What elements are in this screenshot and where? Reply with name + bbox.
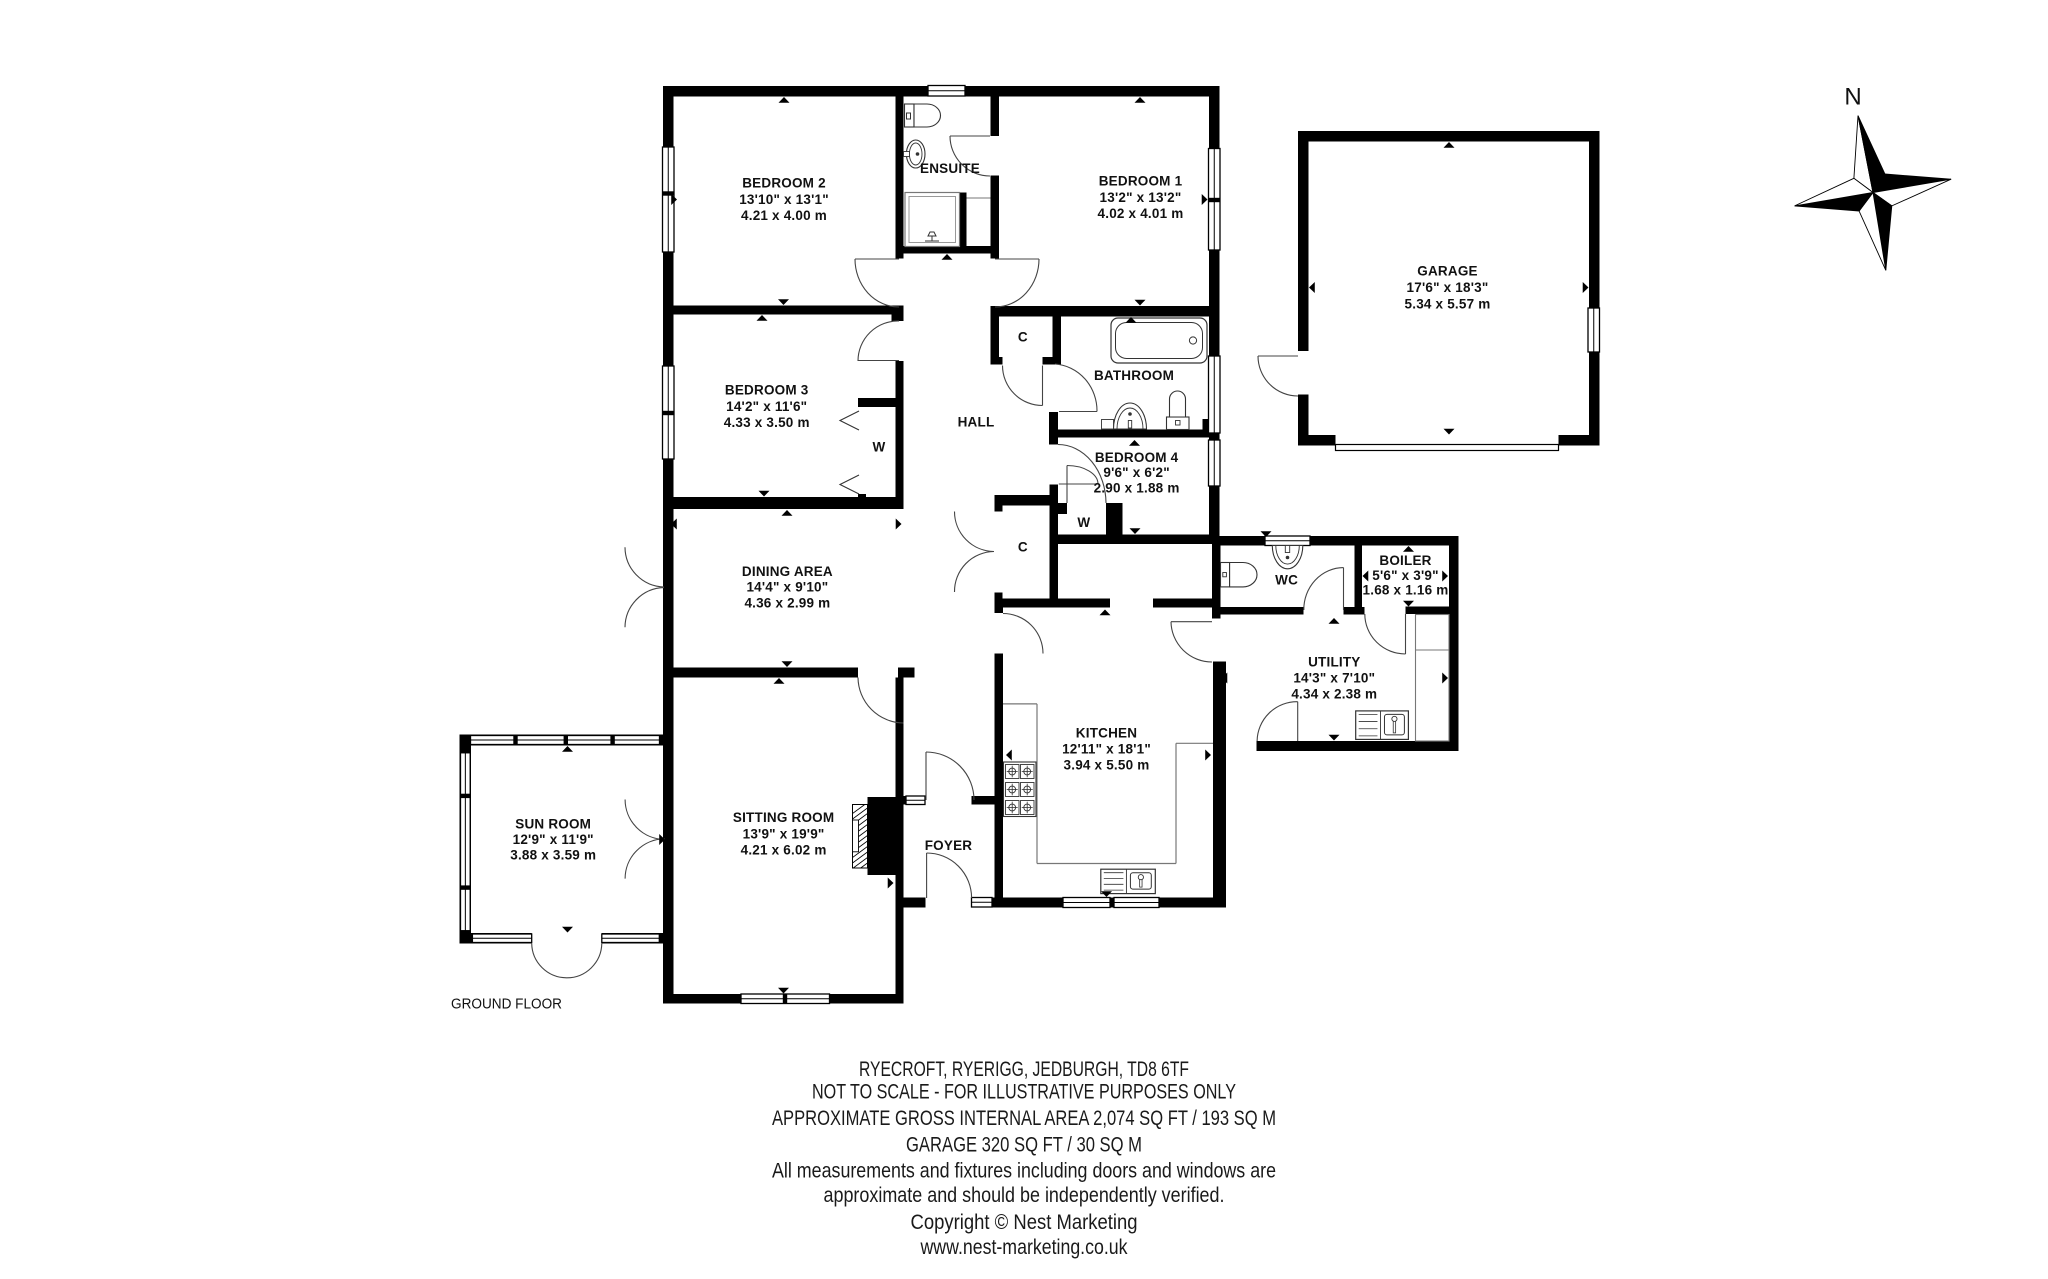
svg-text:WC: WC	[1275, 572, 1298, 587]
svg-text:FOYER: FOYER	[925, 838, 973, 853]
svg-text:13'2" x 13'2": 13'2" x 13'2"	[1100, 190, 1182, 205]
svg-text:2.90 x 1.88 m: 2.90 x 1.88 m	[1094, 480, 1180, 495]
svg-text:3.88 x 3.59 m: 3.88 x 3.59 m	[510, 847, 596, 862]
svg-text:14'2" x 11'6": 14'2" x 11'6"	[726, 399, 807, 414]
svg-text:C: C	[1018, 539, 1028, 554]
svg-text:13'9" x 19'9": 13'9" x 19'9"	[743, 826, 825, 841]
svg-text:4.36 x 2.99 m: 4.36 x 2.99 m	[744, 596, 830, 611]
svg-text:1.68 x 1.16 m: 1.68 x 1.16 m	[1363, 582, 1449, 597]
svg-text:12'11" x 18'1": 12'11" x 18'1"	[1062, 741, 1151, 756]
svg-text:13'10" x 13'1": 13'10" x 13'1"	[739, 192, 829, 207]
svg-text:4.33 x 3.50 m: 4.33 x 3.50 m	[724, 415, 810, 430]
svg-text:17'6" x 18'3": 17'6" x 18'3"	[1407, 280, 1489, 295]
svg-text:BEDROOM 1: BEDROOM 1	[1099, 174, 1183, 189]
svg-text:ENSUITE: ENSUITE	[920, 161, 980, 176]
svg-text:C: C	[1018, 330, 1028, 345]
svg-text:W: W	[873, 440, 886, 455]
svg-text:SITTING ROOM: SITTING ROOM	[733, 810, 834, 825]
svg-text:BEDROOM 2: BEDROOM 2	[742, 176, 826, 191]
svg-text:4.21 x 6.02 m: 4.21 x 6.02 m	[741, 842, 827, 857]
svg-text:3.94 x 5.50 m: 3.94 x 5.50 m	[1064, 757, 1150, 772]
svg-text:BEDROOM 4: BEDROOM 4	[1095, 450, 1179, 465]
svg-text:www.nest-marketing.co.uk: www.nest-marketing.co.uk	[920, 1236, 1128, 1259]
svg-text:GARAGE: GARAGE	[1417, 263, 1477, 278]
svg-text:All measurements and fixtures: All measurements and fixtures including …	[772, 1160, 1276, 1183]
svg-text:9'6" x 6'2": 9'6" x 6'2"	[1103, 465, 1169, 480]
svg-text:UTILITY: UTILITY	[1308, 655, 1360, 670]
svg-text:BEDROOM 3: BEDROOM 3	[725, 383, 809, 398]
svg-text:W: W	[1077, 515, 1090, 530]
svg-text:GARAGE 320 SQ FT / 30 SQ M: GARAGE 320 SQ FT / 30 SQ M	[906, 1134, 1142, 1157]
svg-text:12'9" x 11'9": 12'9" x 11'9"	[513, 832, 594, 847]
svg-text:N: N	[1844, 83, 1861, 110]
svg-text:14'4" x 9'10": 14'4" x 9'10"	[746, 580, 828, 595]
svg-text:DINING AREA: DINING AREA	[742, 564, 833, 579]
svg-text:14'3" x 7'10": 14'3" x 7'10"	[1293, 670, 1375, 685]
svg-text:APPROXIMATE GROSS INTERNAL ARE: APPROXIMATE GROSS INTERNAL AREA 2,074 SQ…	[772, 1107, 1276, 1130]
svg-text:NOT TO SCALE - FOR ILLUSTRATIV: NOT TO SCALE - FOR ILLUSTRATIVE PURPOSES…	[812, 1081, 1236, 1104]
svg-text:4.21 x 4.00 m: 4.21 x 4.00 m	[741, 208, 827, 223]
svg-text:approximate and should be inde: approximate and should be independently …	[824, 1184, 1225, 1207]
svg-text:4.02 x 4.01 m: 4.02 x 4.01 m	[1098, 206, 1184, 221]
svg-text:HALL: HALL	[958, 415, 995, 430]
svg-text:RYECROFT, RYERIGG, JEDBURGH, T: RYECROFT, RYERIGG, JEDBURGH, TD8 6TF	[859, 1058, 1189, 1081]
svg-text:BATHROOM: BATHROOM	[1094, 368, 1174, 383]
svg-text:5.34 x 5.57 m: 5.34 x 5.57 m	[1405, 296, 1491, 311]
svg-text:4.34 x 2.38 m: 4.34 x 2.38 m	[1291, 686, 1377, 701]
svg-text:KITCHEN: KITCHEN	[1076, 726, 1137, 741]
svg-text:BOILER: BOILER	[1379, 553, 1431, 568]
svg-text:5'6" x 3'9": 5'6" x 3'9"	[1372, 568, 1438, 583]
svg-text:Copyright © Nest Marketing: Copyright © Nest Marketing	[911, 1211, 1138, 1234]
svg-text:SUN ROOM: SUN ROOM	[515, 816, 591, 831]
svg-text:GROUND FLOOR: GROUND FLOOR	[451, 995, 562, 1012]
